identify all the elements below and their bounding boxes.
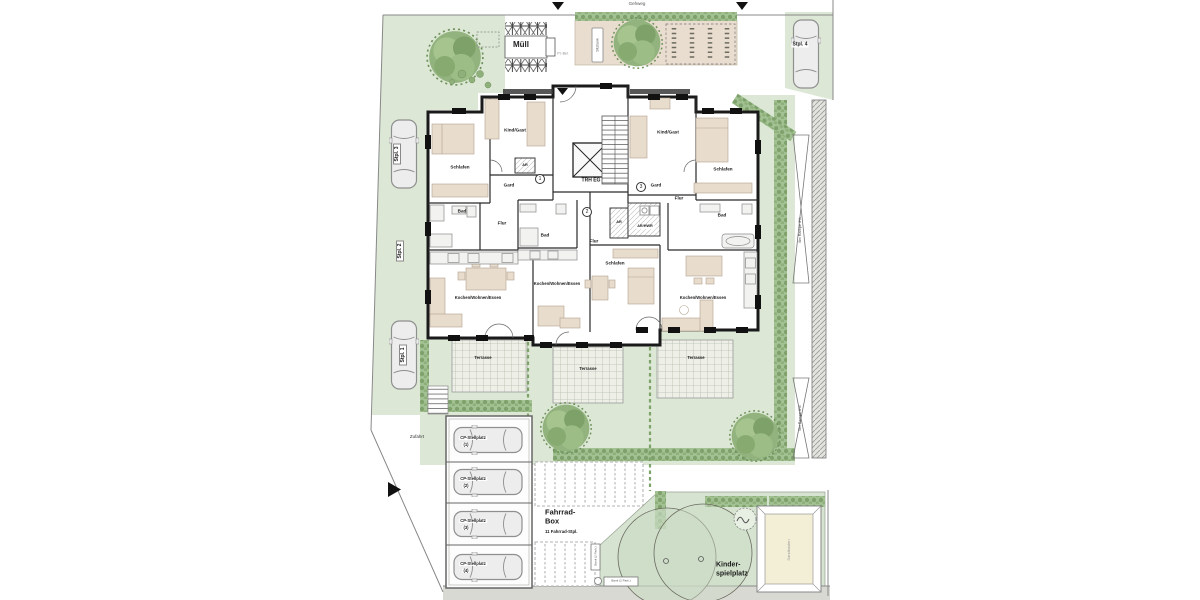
bike-box-title2: Box [545,517,559,525]
room-bad-2: Bad [541,234,550,239]
room-kindgast-1: Kind/Gast [504,129,526,134]
terrasse-1: Terrasse [474,356,491,360]
bench-vertical-label: Bank (2 Park.) [594,546,597,565]
terrasse-2: Terrasse [579,367,596,371]
room-kwe-1: Kochen/Wohnen/Essen [455,296,501,300]
sandbox-label: Sandkasten [787,539,791,560]
room-bad-3: Bad [718,214,727,219]
stpl2-label: Stpl. 2 [396,240,404,261]
unit3-number: 3 [636,182,646,192]
site-plan-drawing [0,0,1200,600]
building [425,83,761,348]
ramp-lower-label: 6m Rampe 6% [799,405,803,430]
room-kwe-3: Kochen/Wohnen/Essen [680,296,726,300]
carport1-label: CP-Stellplatz [459,436,487,440]
room-flur-1: Flur [498,222,507,227]
room-kindgast-3: Kind/Gast [657,131,679,136]
entrance-canopy [630,89,690,94]
room-kwe-2: Kochen/Wohnen/Essen [534,282,580,286]
bike-box-subtitle: 11 Fahrrad-Stpl. [545,530,577,534]
carport3-number: (3) [462,526,469,530]
carport1-number: (1) [462,443,469,447]
carport4-number: (4) [462,569,469,573]
room-schlafen-3: Schlafen [713,168,732,173]
carport4-label: CP-Stellplatz [459,562,487,566]
room-arhwr-2: AR/HWR [636,225,654,229]
playground-equipment [618,504,756,600]
bike-box-title1: Fahrrad- [545,508,575,516]
spring-rider-icon [734,508,756,530]
unit1-number: 1 [535,174,545,184]
room-ar-1: AR [522,164,527,168]
bench-top-label: Sitzbank [596,38,600,51]
room-schlafen-2: Schlafen [605,262,624,267]
ramp-upper-label: 6m Rampe 3% [799,217,803,242]
muell-label: Müll [513,41,529,49]
entrance-canopy [503,89,553,94]
carport2-number: (2) [462,484,469,488]
garden-steps [428,386,448,414]
car-icon [791,20,821,88]
site-plan: Gehweg Müll Pl.-Bel. Sitzbank Stpl. 4 St… [0,0,1200,600]
room-bad-1: Bad [458,210,467,215]
stpl3-label: Stpl. 3 [393,143,401,164]
terrasse-3: Terrasse [687,356,704,360]
room-gard-3: Gard [651,184,662,189]
stpl1-label: Stpl. 1 [399,344,407,365]
playground-title1: Kinder- [716,562,741,569]
carport3-label: CP-Stellplatz [459,519,487,523]
gehweg-label: Gehweg [629,2,646,7]
room-flur-2: Flur [590,240,599,245]
stpl4-label: Stpl. 4 [791,43,808,48]
room-ar-2: AR [616,221,621,225]
room-gard-1: Gard [504,184,515,189]
room-flur-3: Flur [675,197,684,202]
room-schlafen-1: Schlafen [450,166,469,171]
zufahrt-label: Zufahrt [410,435,424,440]
playground-title2: spielplatz [716,571,748,578]
path-material-label: Pl.-Bel. [557,52,568,56]
unit2-number: 2 [582,207,592,217]
bench-horizontal-label: Bank (2 Park.) [611,580,630,583]
retaining-wall [812,100,826,458]
carport2-label: CP-Stellplatz [459,477,487,481]
staircase-label: TRH EG [582,179,601,184]
